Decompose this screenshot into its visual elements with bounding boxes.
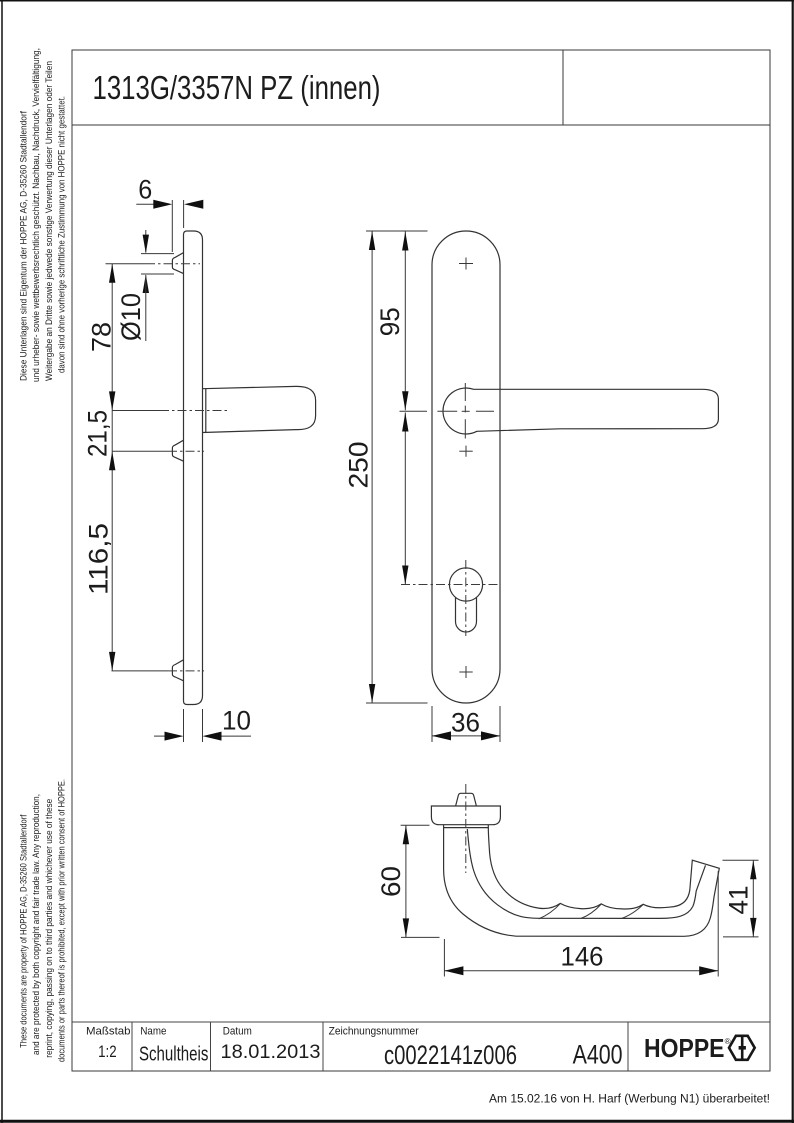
svg-text:und urheber- sowie wettbewerbs: und urheber- sowie wettbewerbsrechtlich … xyxy=(30,48,41,382)
svg-text:1313G/3357N PZ (innen): 1313G/3357N PZ (innen) xyxy=(93,69,381,106)
svg-text:A400: A400 xyxy=(573,1040,623,1070)
svg-text:41: 41 xyxy=(724,886,754,915)
svg-text:and are protected by both copy: and are protected by both copyright and … xyxy=(30,794,41,1055)
svg-text:HOPPE: HOPPE xyxy=(644,1033,725,1063)
svg-text:116,5: 116,5 xyxy=(84,523,114,595)
svg-text:reprint, copying, passing on t: reprint, copying, passing on to third pa… xyxy=(43,799,54,1058)
svg-text:6: 6 xyxy=(138,175,152,205)
svg-text:250: 250 xyxy=(344,442,374,489)
svg-text:Am 15.02.16 von H. Harf (Werbu: Am 15.02.16 von H. Harf (Werbung N1) übe… xyxy=(489,1092,770,1106)
svg-text:146: 146 xyxy=(561,942,604,972)
svg-text:78: 78 xyxy=(86,322,116,352)
svg-text:10: 10 xyxy=(222,706,251,736)
svg-text:These documents are property o: These documents are property of HOPPE AG… xyxy=(18,814,29,1047)
svg-text:Name: Name xyxy=(140,1026,166,1038)
svg-text:Zeichnungsnummer: Zeichnungsnummer xyxy=(329,1026,419,1038)
svg-text:Maßstab: Maßstab xyxy=(86,1026,131,1038)
svg-text:Datum: Datum xyxy=(223,1026,252,1038)
svg-text:18.01.2013: 18.01.2013 xyxy=(221,1042,321,1063)
svg-text:Diese Unterlagen sind Eigentum: Diese Unterlagen sind Eigentum der HOPPE… xyxy=(18,111,29,381)
svg-text:Weitergabe an Dritte sowie jed: Weitergabe an Dritte sowie jedwede sonst… xyxy=(43,61,54,381)
svg-text:Ø10: Ø10 xyxy=(116,293,146,341)
svg-text:21,5: 21,5 xyxy=(83,410,113,457)
svg-text:36: 36 xyxy=(451,708,480,738)
svg-text:documents or parts thereof is: documents or parts thereof is prohibited… xyxy=(56,779,67,1062)
svg-text:95: 95 xyxy=(375,307,405,336)
svg-text:60: 60 xyxy=(376,866,406,897)
svg-text:Schultheis: Schultheis xyxy=(139,1043,209,1065)
svg-text:c0022141z006: c0022141z006 xyxy=(384,1040,517,1070)
svg-text:1:2: 1:2 xyxy=(98,1042,117,1061)
svg-text:davon sind ohne vorherige schr: davon sind ohne vorherige schriftliche Z… xyxy=(56,96,67,373)
